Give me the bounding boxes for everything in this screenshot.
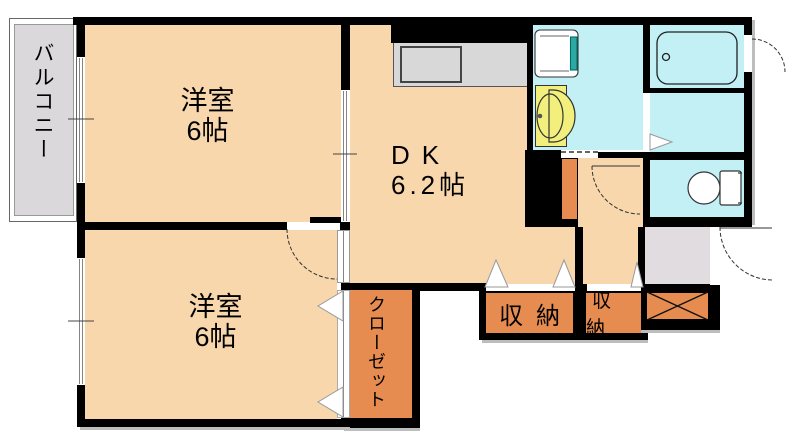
room-toilet [650,160,744,217]
kitchen-sink [400,46,462,83]
room-top-label: 洋室 6帖 [125,86,290,146]
wall-segment [77,183,85,258]
wall-segment [412,283,420,428]
room-bath [650,25,744,88]
room-bottom-label: 洋室 6帖 [133,292,298,352]
storage-left-opening [486,284,575,291]
room-washroom-annex [650,93,744,152]
wall-shadow [344,428,420,431]
room-top-name: 洋室 [125,86,290,116]
floor-plan: バルコニー 洋室 6帖 洋室 6帖 DK 6.2帖 クローゼット 収納 収納 [0,0,800,448]
storage-left-label: 収納 [486,293,573,333]
wall-segment [555,220,578,227]
wall-segment [341,21,350,90]
entry-door-opening [710,227,720,285]
dk-name: DK [391,141,541,171]
room-top-size: 6帖 [125,116,290,146]
closet-label: クローゼット [363,295,389,419]
room-dk-lower [350,222,420,283]
hallway-right [583,222,638,284]
shoe-cabinet [645,291,710,321]
wall-segment [710,289,720,327]
washroom-threshold [561,150,598,158]
bath-door-arc [752,39,785,72]
closet-folding-door [337,290,350,418]
wall-segment [77,419,350,427]
entry-door-arc [720,227,773,280]
wall-segment [643,21,650,93]
wall-shadow [80,427,350,430]
wall-segment [77,21,85,57]
sliding-partition [341,90,350,222]
storage-right-label: 収納 [586,293,641,333]
wall-segment [641,284,720,291]
wall-segment [650,88,752,93]
vanity-cabinet [535,85,567,147]
wall-shadow [482,340,648,343]
door-leaf-strip [337,230,350,283]
wall-segment [391,17,533,43]
room-bottom-size: 6帖 [133,322,298,352]
wall-shadow [641,330,720,333]
hallway-upper [578,158,643,227]
entry-floor [645,227,710,285]
wall-segment [650,152,752,160]
wall-shadow [752,20,755,225]
hall-cabinet [561,158,578,220]
wall-segment [77,222,287,230]
wall-segment [643,217,752,227]
bath-door-opening [744,35,752,72]
window-bottom [77,258,85,385]
wall-segment [598,152,643,158]
wall-segment [341,418,420,428]
dk-label: DK 6.2帖 [391,141,541,201]
window-top [77,57,85,183]
wall-segment [638,320,720,330]
wall-segment [340,222,350,230]
balcony-label: バルコニー [31,42,57,202]
dk-size: 6.2帖 [391,171,541,201]
hallway-left [420,222,575,284]
wall-segment [643,152,650,217]
room-bottom-name: 洋室 [133,292,298,322]
